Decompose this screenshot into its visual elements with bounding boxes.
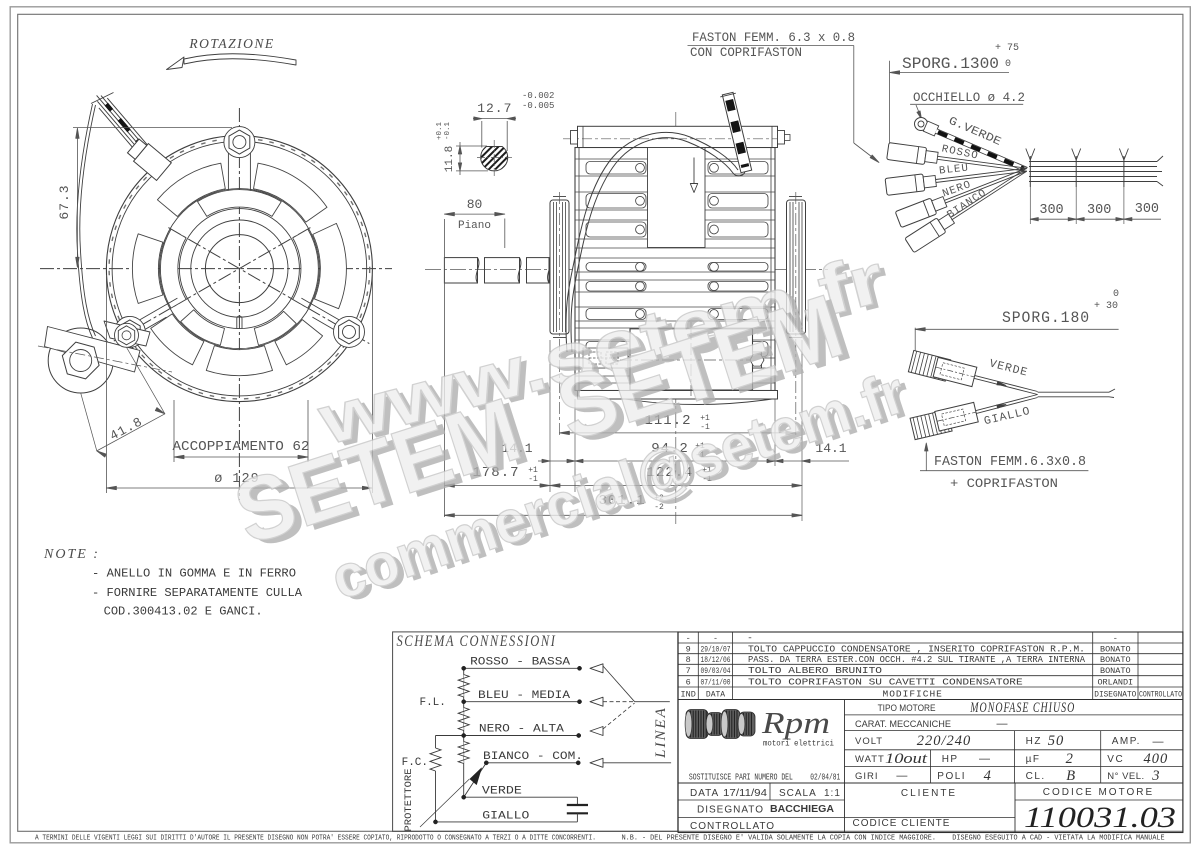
svg-text:80: 80	[467, 197, 483, 212]
svg-text:300: 300	[1087, 203, 1111, 218]
svg-text:-: -	[747, 633, 753, 644]
svg-text:6: 6	[686, 678, 691, 688]
svg-text:DISEGNATO: DISEGNATO	[697, 805, 764, 816]
svg-text:2: 2	[1066, 751, 1074, 767]
svg-text:BLEU - MEDIA: BLEU - MEDIA	[478, 690, 570, 702]
svg-text:SOSTITUISCE PARI NUMERO DEL: SOSTITUISCE PARI NUMERO DEL	[689, 773, 793, 783]
svg-text:-0.002: -0.002	[522, 91, 554, 101]
svg-text:CARAT. MECCANICHE: CARAT. MECCANICHE	[855, 719, 951, 730]
svg-text:8: 8	[686, 655, 691, 665]
svg-text:12.7: 12.7	[477, 101, 512, 116]
svg-text:FASTON FEMM.6.3x0.8: FASTON FEMM.6.3x0.8	[934, 455, 1086, 470]
svg-text:BONATO: BONATO	[1100, 655, 1131, 665]
svg-text:HZ: HZ	[1026, 736, 1042, 747]
svg-text:—: —	[896, 770, 907, 782]
svg-text:TIPO MOTORE: TIPO MOTORE	[878, 703, 936, 714]
svg-text:3: 3	[1151, 768, 1159, 784]
svg-text:CONTROLLATO: CONTROLLATO	[690, 821, 775, 832]
svg-text:PASS. DA TERRA ESTER.CON OCCH.: PASS. DA TERRA ESTER.CON OCCH. #4.2 SUL …	[748, 654, 1085, 665]
svg-text:-: -	[1113, 634, 1118, 644]
svg-text:SPORG.180: SPORG.180	[1002, 309, 1090, 327]
svg-text:WATT: WATT	[855, 754, 885, 765]
svg-text:VC: VC	[1107, 754, 1124, 765]
svg-text:DATA: DATA	[690, 788, 719, 799]
svg-text:TOLTO CAPPUCCIO CONDENSATORE ,: TOLTO CAPPUCCIO CONDENSATORE , INSERITO …	[748, 644, 1085, 655]
svg-text:BONATO: BONATO	[1100, 666, 1131, 676]
svg-text:CONTROLLATO: CONTROLLATO	[1139, 691, 1182, 700]
svg-text:IND: IND	[681, 690, 696, 700]
svg-text:ROSSO - BASSA: ROSSO - BASSA	[470, 657, 570, 669]
svg-text:400: 400	[1144, 751, 1169, 767]
svg-text:DATA: DATA	[706, 691, 725, 700]
svg-text:B: B	[1066, 768, 1075, 784]
svg-text:110031.03: 110031.03	[1024, 801, 1176, 834]
svg-text:µF: µF	[1026, 754, 1041, 765]
svg-text:300: 300	[1039, 203, 1063, 218]
svg-text:- FORNIRE SEPARATAMENTE CULLA: - FORNIRE SEPARATAMENTE CULLA	[92, 586, 303, 600]
svg-text:—: —	[979, 753, 990, 765]
svg-text:AMP.: AMP.	[1112, 736, 1141, 747]
svg-text:LINEA: LINEA	[653, 706, 669, 759]
svg-text:GIRI: GIRI	[855, 771, 879, 782]
svg-text:TOLTO ALBERO BRUNITO: TOLTO ALBERO BRUNITO	[748, 665, 882, 676]
svg-text:67.3: 67.3	[57, 184, 72, 219]
svg-text:VOLT: VOLT	[855, 736, 883, 747]
svg-text:motori elettrici: motori elettrici	[763, 739, 834, 749]
svg-text:18/12/06: 18/12/06	[701, 656, 731, 665]
svg-text:ROTAZIONE: ROTAZIONE	[188, 36, 274, 51]
svg-text:+0.1: +0.1	[436, 122, 444, 141]
svg-text:BIANCO - COM.: BIANCO - COM.	[483, 751, 583, 763]
svg-text:7: 7	[686, 666, 691, 676]
svg-text:COD.300413.02 E GANCI.: COD.300413.02 E GANCI.	[104, 605, 263, 619]
svg-text:CL.: CL.	[1026, 771, 1046, 782]
svg-text:CON COPRIFASTON: CON COPRIFASTON	[690, 46, 802, 60]
svg-text:SPORG.1300: SPORG.1300	[902, 55, 999, 73]
svg-text:-0.1: -0.1	[444, 122, 452, 141]
svg-text:GIALLO: GIALLO	[482, 810, 529, 822]
svg-text:BONATO: BONATO	[1100, 645, 1131, 655]
svg-text:BACCHIEGA: BACCHIEGA	[770, 803, 834, 815]
svg-text:02/04/81: 02/04/81	[810, 773, 840, 783]
svg-text:0: 0	[1005, 59, 1011, 70]
svg-text:ORLANDI: ORLANDI	[1097, 678, 1133, 688]
svg-text:+ COPRIFASTON: + COPRIFASTON	[950, 477, 1058, 491]
svg-text:MODIFICHE: MODIFICHE	[883, 689, 943, 700]
svg-text:9: 9	[686, 645, 691, 655]
svg-text:MONOFASE CHIUSO: MONOFASE CHIUSO	[970, 700, 1076, 716]
svg-text:07/11/00: 07/11/00	[701, 679, 731, 688]
svg-text:09/03/04: 09/03/04	[701, 667, 731, 676]
svg-text:NERO - ALTA: NERO - ALTA	[479, 724, 564, 736]
svg-text:- ANELLO IN GOMMA E IN FERRO: - ANELLO IN GOMMA E IN FERRO	[92, 567, 296, 581]
svg-text:TOLTO COPRIFASTON SU CAVETTI C: TOLTO COPRIFASTON SU CAVETTI CONDENSATOR…	[748, 677, 1023, 688]
svg-text:29/10/07: 29/10/07	[701, 646, 731, 655]
svg-text:A TERMINI DELLE VIGENTI LEGGI: A TERMINI DELLE VIGENTI LEGGI SUI DIRITT…	[35, 835, 596, 843]
svg-text:CODICE CLIENTE: CODICE CLIENTE	[853, 818, 951, 829]
svg-text:+ 75: + 75	[995, 43, 1019, 54]
svg-text:SCALA: SCALA	[779, 788, 817, 799]
svg-text:Rpm: Rpm	[761, 705, 830, 740]
svg-text:F.C.: F.C.	[402, 757, 428, 769]
svg-text:0: 0	[1113, 289, 1119, 300]
svg-text:4: 4	[984, 768, 991, 784]
svg-text:50: 50	[1048, 733, 1065, 749]
svg-text:PROTETTORE: PROTETTORE	[403, 768, 415, 831]
svg-text:1:1: 1:1	[824, 788, 841, 799]
svg-text:DISEGNATO: DISEGNATO	[1094, 691, 1136, 700]
svg-text:Piano: Piano	[458, 220, 491, 232]
svg-text:CODICE MOTORE: CODICE MOTORE	[1043, 787, 1154, 798]
svg-text:+ 30: + 30	[1094, 301, 1118, 312]
svg-text:-0.005: -0.005	[522, 101, 554, 111]
svg-text:OCCHIELLO ø 4.2: OCCHIELLO ø 4.2	[913, 91, 1025, 105]
svg-text:10out: 10out	[885, 751, 928, 767]
svg-text:SCHEMA CONNESSIONI: SCHEMA CONNESSIONI	[397, 633, 557, 650]
svg-text:220/240: 220/240	[917, 733, 972, 749]
svg-text:F.L.: F.L.	[419, 697, 445, 709]
svg-text:-: -	[713, 635, 718, 644]
svg-text:-: -	[686, 634, 691, 644]
svg-text:N° VEL.: N° VEL.	[1107, 771, 1144, 782]
svg-text:—: —	[1153, 736, 1164, 748]
svg-text:300: 300	[1135, 202, 1159, 217]
svg-text:VERDE: VERDE	[482, 786, 522, 798]
svg-text:11.8: 11.8	[444, 146, 456, 172]
svg-text:NOTE :: NOTE :	[43, 547, 100, 562]
svg-text:HP: HP	[942, 754, 959, 765]
svg-text:N.B. - DEL PRESENTE DISEGNO E': N.B. - DEL PRESENTE DISEGNO E' VALIDA SO…	[622, 835, 1165, 843]
svg-text:17/11/94: 17/11/94	[723, 788, 768, 799]
svg-text:POLI: POLI	[937, 771, 966, 782]
svg-text:CLIENTE: CLIENTE	[901, 788, 957, 799]
svg-text:—: —	[997, 718, 1008, 730]
svg-text:FASTON FEMM. 6.3 x 0.8: FASTON FEMM. 6.3 x 0.8	[692, 31, 855, 45]
